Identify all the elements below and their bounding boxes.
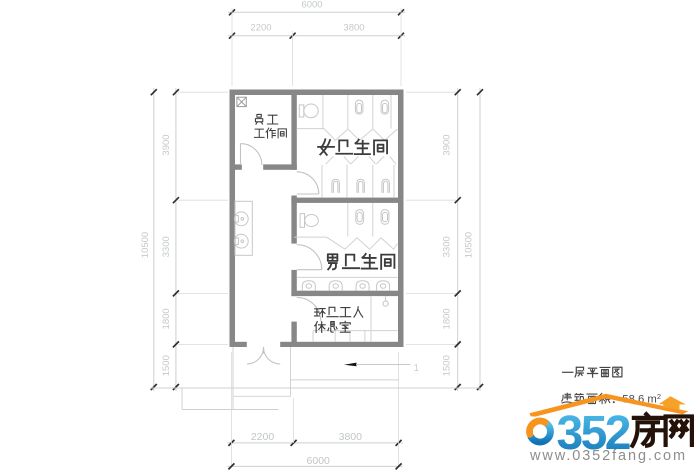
svg-text:10500: 10500: [464, 232, 475, 258]
svg-text:3900: 3900: [161, 134, 172, 155]
svg-text:2200: 2200: [251, 431, 275, 443]
svg-text:1800: 1800: [161, 308, 172, 329]
svg-text:3300: 3300: [161, 236, 172, 257]
svg-text:1500: 1500: [442, 355, 453, 376]
svg-text:2200: 2200: [250, 23, 271, 34]
svg-text:3900: 3900: [442, 134, 453, 155]
svg-text:10500: 10500: [140, 232, 151, 258]
svg-text:www.0352fang.com: www.0352fang.com: [529, 448, 687, 464]
svg-text:6000: 6000: [307, 455, 331, 467]
svg-text:6000: 6000: [301, 0, 322, 11]
svg-text:3800: 3800: [343, 23, 364, 34]
svg-text:3300: 3300: [442, 236, 453, 257]
svg-text:1500: 1500: [161, 355, 172, 376]
svg-text:3800: 3800: [339, 431, 363, 443]
svg-text:1: 1: [414, 363, 420, 374]
svg-text:1800: 1800: [442, 308, 453, 329]
